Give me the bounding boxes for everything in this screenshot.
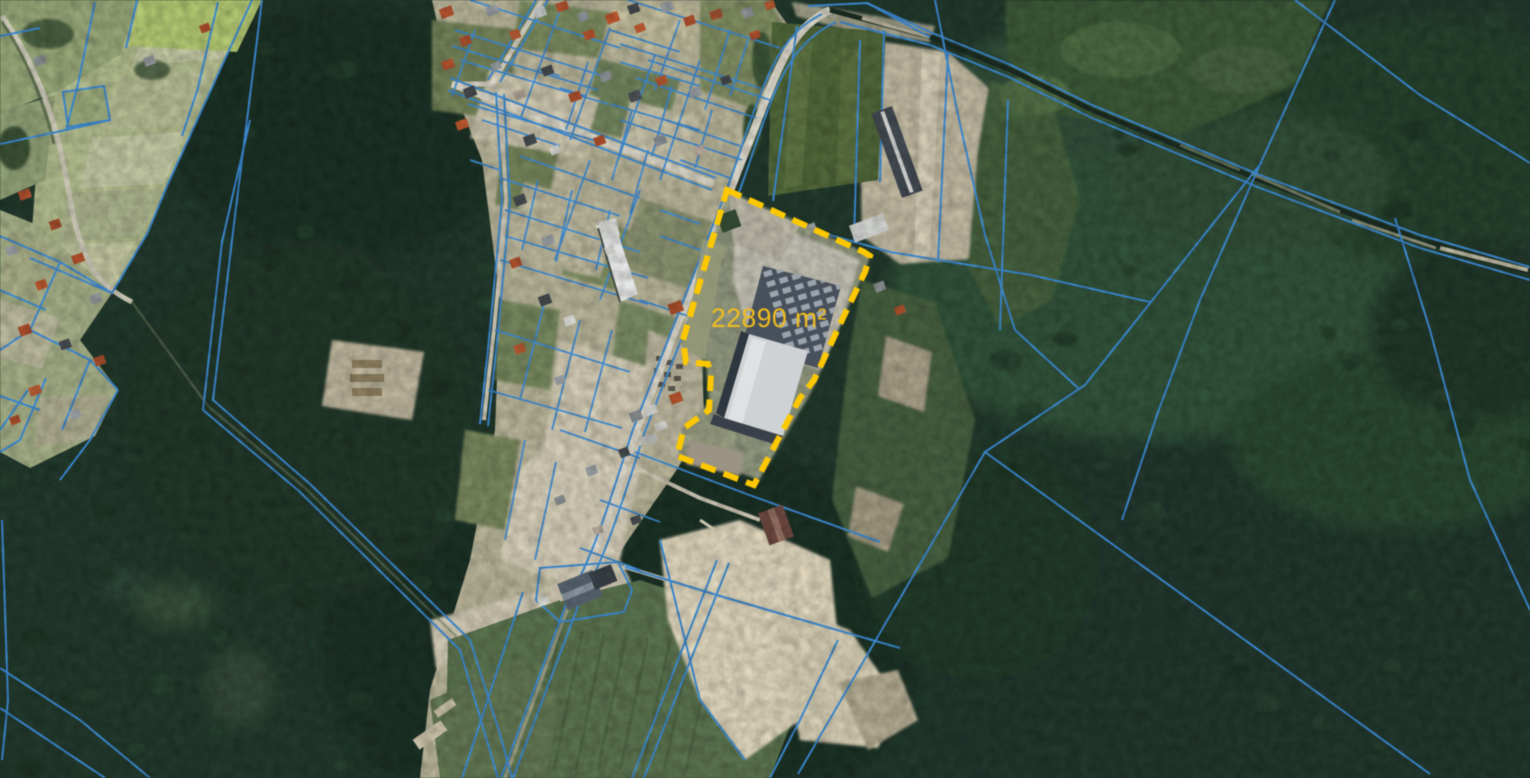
svg-text:22890 m²: 22890 m² (711, 303, 827, 333)
